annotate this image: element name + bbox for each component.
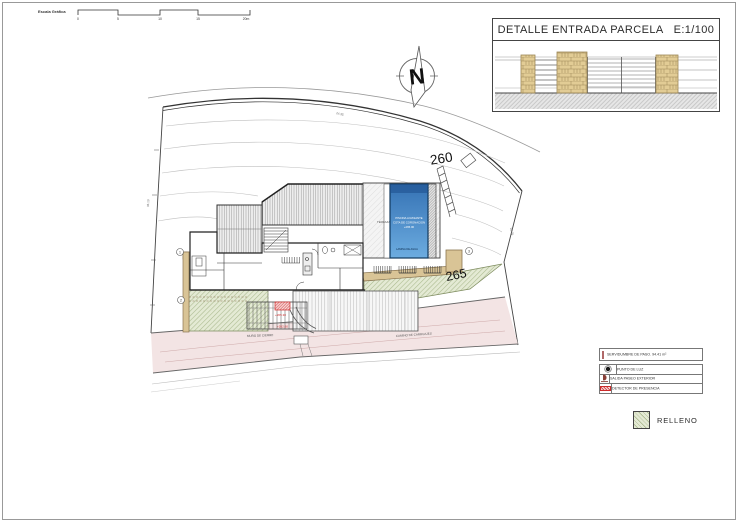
north-letter: N — [408, 63, 426, 90]
legend-relleno: RELLENO — [633, 411, 698, 429]
scale-bar: Escala Gráfica 0 5 10 15 20m — [38, 9, 250, 21]
gate-elevation — [493, 41, 719, 112]
legend-row-label: PUNTO DE LUZ — [617, 367, 643, 371]
contour-label-260: 260 — [429, 149, 454, 167]
legend-row-label: SALIDA PASEO EXTERIOR — [610, 377, 655, 381]
level-note: +265.30 — [275, 313, 286, 317]
drawing-sheet: Escala Gráfica 0 5 10 15 20m N — [0, 0, 738, 522]
exterior-walk-exit-icon — [600, 375, 610, 384]
scale-tick: 10 — [158, 17, 162, 21]
detail-title-text: DETALLE ENTRADA PARCELA — [498, 24, 664, 36]
dim-note: 35.10 — [146, 199, 150, 207]
scale-tick: 0 — [77, 17, 79, 21]
light-point-icon — [600, 365, 617, 374]
scale-tick: 15 — [196, 17, 200, 21]
detail-title: DETALLE ENTRADA PARCELA E:1/100 — [493, 19, 719, 41]
detail-scale-text: E:1/100 — [674, 24, 715, 36]
legend-row-exterior-walk-exit: SALIDA PASEO EXTERIOR — [600, 374, 702, 384]
scale-bar-title: Escala Gráfica — [38, 9, 66, 14]
presence-detector-icon — [600, 384, 612, 393]
dim-note: 24.35 — [336, 111, 345, 117]
terrace-label: TERRAZA — [377, 220, 390, 224]
dim-note: 28.76 — [509, 227, 515, 236]
scale-tick: 20m — [243, 17, 250, 21]
pool-label: PISCINA A RASANTE — [395, 216, 422, 220]
pool: PISCINA A RASANTE COTA DE CORONACION +26… — [390, 184, 428, 258]
servidumbre-swatch — [602, 351, 604, 359]
scale-bar-steps — [78, 10, 250, 15]
north-arrow-icon: N — [396, 46, 438, 107]
servidumbre-label: SERVIDUMBRE DE PASO. 94.41 m² — [607, 352, 666, 356]
relleno-swatch — [633, 411, 650, 429]
svg-text:2: 2 — [180, 298, 182, 302]
legend-row-light-point: PUNTO DE LUZ — [600, 365, 702, 374]
level-note: +262.60 — [277, 325, 288, 329]
svg-text:1: 1 — [179, 250, 181, 254]
pool-caption: LAMINA DE AGUA — [396, 247, 418, 251]
red-annotations: +265.30 +262.60 — [275, 302, 290, 329]
detail-entrance-box: DETALLE ENTRADA PARCELA E:1/100 — [492, 18, 720, 112]
svg-text:3: 3 — [468, 249, 470, 253]
pool-label: COTA DE CORONACION — [393, 221, 425, 225]
scale-tick: 5 — [117, 17, 119, 21]
legend-servidumbre: SERVIDUMBRE DE PASO. 94.41 m² — [599, 348, 703, 361]
legend-symbols-table: PUNTO DE LUZ SALIDA PASEO EXTERIOR DETEC… — [599, 364, 703, 394]
relleno-label: RELLENO — [657, 416, 698, 425]
legend-row-label: DETECTOR DE PRESENCIA — [612, 386, 660, 390]
pool-label: +265.00 — [404, 225, 415, 229]
legend-row-presence-detector: DETECTOR DE PRESENCIA — [600, 383, 702, 393]
ground-hatch — [495, 93, 717, 109]
